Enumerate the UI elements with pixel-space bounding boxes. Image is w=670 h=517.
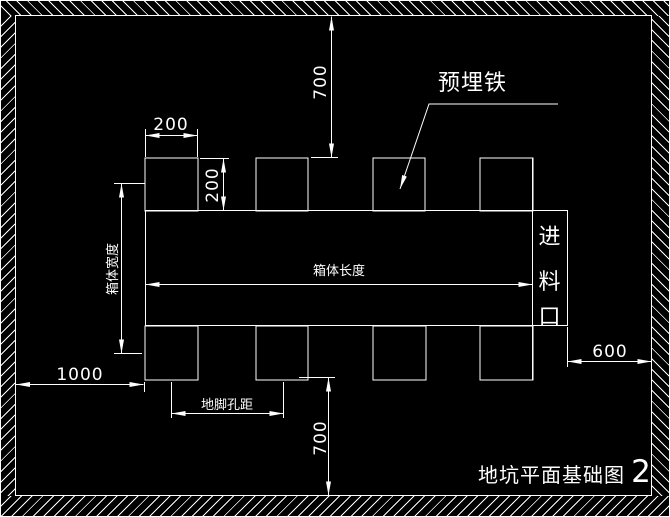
embedded-iron-callout: 预埋铁 (400, 71, 558, 189)
anchor-block-top-4 (480, 158, 533, 211)
dim-box-width: 箱体宽度 (105, 184, 145, 354)
embedded-iron-label: 预埋铁 (438, 71, 507, 96)
dim-text-block-width: 200 (153, 115, 188, 135)
anchor-block-top-2 (256, 158, 308, 211)
anchor-block-bottom-2 (256, 326, 308, 380)
dim-top-700: 700 (311, 17, 338, 158)
leader-arrow (400, 104, 558, 189)
anchor-block-bottom-1 (145, 326, 198, 380)
drawing-title-number: 2 (631, 454, 651, 490)
box-length-label: 箱体长度 (313, 263, 365, 279)
box-width-label: 箱体宽度 (105, 243, 121, 295)
drawing-svg: 进 料 口 200 200 (1, 1, 669, 516)
feed-inlet-label-char2: 料 (538, 270, 561, 295)
cad-foundation-drawing: 进 料 口 200 200 (0, 0, 670, 517)
dim-block-height-200: 200 (200, 159, 229, 211)
feed-inlet-label-char3: 口 (538, 305, 561, 330)
dim-bottom-700: 700 (299, 378, 335, 496)
anchor-hole-spacing-label: 地脚孔距 (201, 397, 253, 413)
anchor-block-top-1 (145, 158, 198, 211)
dim-text-block-height: 200 (203, 167, 223, 202)
drawing-title: 地坑平面基础图 2 (478, 454, 651, 490)
anchor-block-bottom-3 (373, 326, 426, 380)
dim-anchor-hole-spacing: 地脚孔距 (172, 382, 284, 418)
dim-block-width-200: 200 (146, 115, 198, 157)
dim-right-600: 600 (568, 327, 652, 367)
feed-inlet-box: 进 料 口 (533, 211, 568, 331)
dim-text-left-offset: 1000 (56, 365, 103, 385)
dim-text-top-offset: 700 (311, 64, 331, 99)
dim-text-bottom-offset: 700 (311, 420, 331, 455)
dim-left-1000: 1000 (16, 365, 145, 392)
dim-box-length: 箱体长度 (146, 263, 533, 285)
feed-inlet-label-char1: 进 (538, 225, 561, 250)
drawing-title-text: 地坑平面基础图 (478, 463, 625, 487)
dim-text-right-offset: 600 (592, 342, 627, 362)
anchor-block-bottom-4 (480, 326, 533, 380)
anchor-block-top-3 (373, 158, 425, 211)
